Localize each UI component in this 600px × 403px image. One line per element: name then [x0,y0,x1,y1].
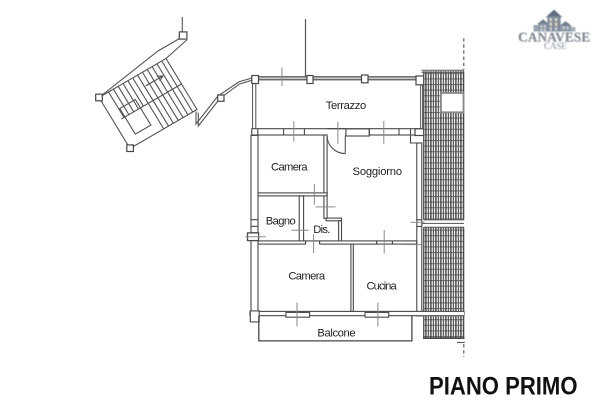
svg-text:CASE: CASE [544,41,568,51]
svg-text:Soggiorno: Soggiorno [353,166,403,178]
svg-text:Cucina: Cucina [367,281,398,293]
svg-text:Balcone: Balcone [317,328,355,340]
svg-text:Camera: Camera [271,162,308,174]
svg-text:Terrazzo: Terrazzo [326,100,367,112]
svg-text:Dis.: Dis. [313,224,330,236]
svg-text:Camera: Camera [288,271,325,283]
svg-text:PIANO PRIMO: PIANO PRIMO [429,373,578,401]
svg-text:Bagno: Bagno [266,216,296,228]
